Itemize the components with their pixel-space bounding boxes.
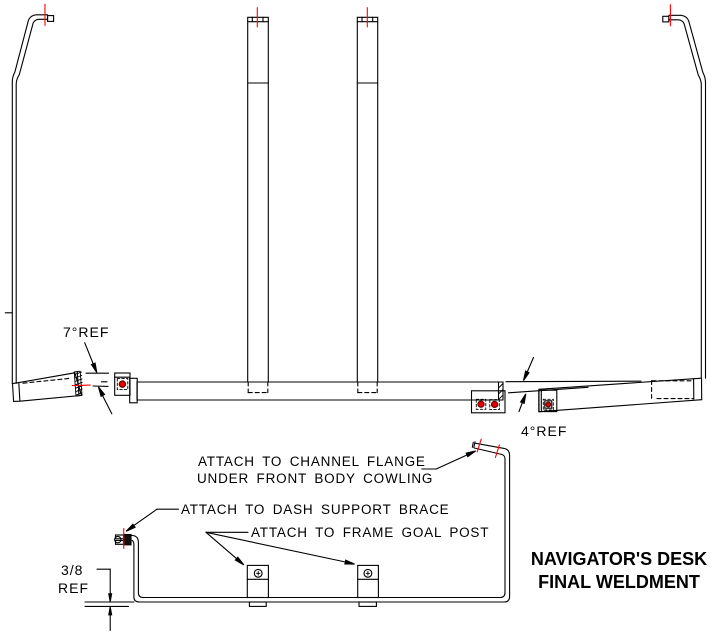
- note-dash-support-brace: ATTACH TO DASH SUPPORT BRACE: [181, 502, 449, 517]
- left-hook-clip: [48, 16, 54, 22]
- dim-3-8: [85, 569, 134, 630]
- goal-post-bracket-left: [247, 565, 268, 606]
- bar-left-bracket: [86, 373, 137, 403]
- dim-label-ref: REF: [58, 580, 89, 596]
- note-channel-flange-line2: UNDER FRONT BODY COWLING: [197, 471, 433, 486]
- dim-label-7deg: 7°REF: [63, 324, 109, 340]
- weldment-drawing: [0, 0, 720, 640]
- leader-dash-brace: [126, 509, 178, 531]
- arrowhead: [521, 394, 526, 404]
- note-frame-goal-post: ATTACH TO FRAME GOAL POST: [251, 525, 489, 540]
- right-hook-clip: [663, 16, 669, 22]
- arrowhead: [109, 607, 112, 615]
- bolt-hole: [478, 401, 484, 407]
- arrowhead: [345, 560, 355, 564]
- drawing-title-line1: NAVIGATOR'S DESK: [505, 548, 720, 571]
- arrowhead: [126, 524, 135, 531]
- dim-4deg: [506, 358, 641, 412]
- left-post-hidden-lines: [248, 382, 268, 393]
- arrowhead: [524, 371, 530, 381]
- centerline-left-arm: [72, 385, 90, 386]
- right-mount-arm: [539, 378, 702, 412]
- left-goal-post: [248, 8, 269, 393]
- dim-label-4deg: 4°REF: [521, 423, 567, 439]
- right-arm-bracket: [539, 390, 557, 411]
- left-mount-arm: [13, 371, 91, 401]
- cad-sheet: ATTACH TO CHANNEL FLANGE UNDER FRONT BOD…: [0, 0, 720, 640]
- dash-brace-clevis: [115, 529, 131, 549]
- arrowhead: [109, 594, 112, 602]
- bolt-hole: [546, 402, 551, 407]
- drawing-title-line2: FINAL WELDMENT: [505, 571, 720, 594]
- left-hanger-arm: [5, 4, 53, 383]
- arrowhead: [98, 387, 104, 396]
- right-goal-post: [357, 8, 377, 393]
- bolt-hole: [119, 381, 125, 387]
- arrowhead: [92, 363, 97, 373]
- right-post-hidden-lines: [358, 382, 377, 393]
- right-hanger-arm: [663, 5, 706, 379]
- bar-right-plate: [472, 391, 506, 413]
- cross-bar: [86, 373, 505, 413]
- arrowhead: [466, 451, 475, 457]
- title-block: NAVIGATOR'S DESK FINAL WELDMENT: [505, 548, 720, 594]
- note-channel-flange-line1: ATTACH TO CHANNEL FLANGE: [198, 454, 426, 469]
- leader-channel-flange: [422, 451, 476, 469]
- dim-label-3-8: 3/8: [61, 562, 83, 578]
- goal-post-bracket-right: [358, 565, 379, 606]
- dim-7deg: [85, 343, 112, 414]
- bolt-hole: [492, 401, 498, 407]
- arrowhead: [235, 557, 243, 565]
- right-arm-hidden-lines: [652, 381, 693, 399]
